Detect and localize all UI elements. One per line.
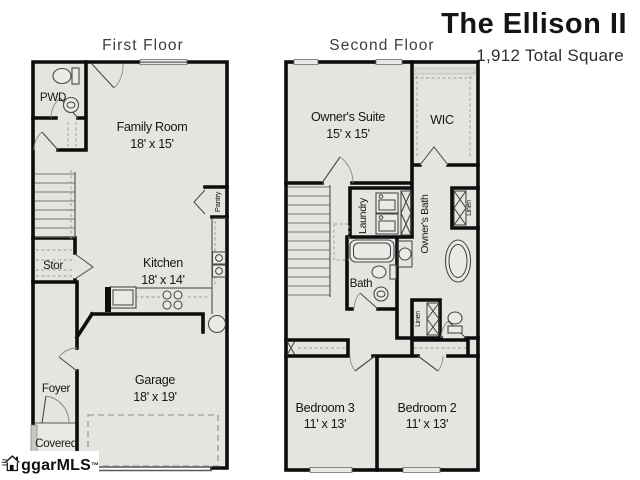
window [403, 467, 440, 472]
wic-shelf [414, 68, 475, 74]
owners-suite-dims: 15' x 15' [326, 127, 369, 141]
garage-label: Garage [135, 373, 176, 387]
floor-plan-page: The Ellison II 1,912 Total Square First … [0, 0, 640, 480]
floor-plan-drawing: PWD Family Room 18' x 15' Stor Kitchen 1… [0, 0, 640, 480]
bedroom3-dims: 11' x 13' [304, 417, 347, 431]
window [294, 60, 318, 65]
linen-upper-label: Linen [466, 200, 473, 216]
wic-label: WIC [430, 113, 454, 127]
bath-label: Bath [350, 277, 373, 290]
pwd-label: PWD [40, 91, 66, 104]
pantry-label: Pantry [213, 191, 222, 212]
family-room-label: Family Room [117, 120, 188, 134]
bedroom2-label: Bedroom 2 [398, 401, 457, 415]
first-floor-plan: PWD Family Room 18' x 15' Stor Kitchen 1… [31, 60, 227, 471]
window [376, 60, 402, 65]
bathtub-icon [350, 240, 394, 262]
window [310, 467, 352, 472]
linen-hall-label: Linen [415, 311, 422, 327]
laundry-label: Laundry [357, 197, 369, 234]
refrigerator-icon [110, 287, 136, 308]
sink-icon [374, 287, 388, 301]
toilet-icon [372, 265, 396, 279]
owners-bath-label: Owner's Bath [419, 194, 431, 254]
toilet-icon [448, 312, 462, 333]
second-floor-plan: Owner's Suite 15' x 15' WIC Laundry Owne… [286, 60, 478, 473]
mls-watermark: ggarMLS™ [0, 451, 99, 480]
house-logo-icon [1, 448, 21, 478]
kitchen-sink-icon [213, 252, 226, 277]
bedroom2-dims: 11' x 13' [406, 417, 449, 431]
bedroom3-label: Bedroom 3 [296, 401, 355, 415]
toilet-icon [53, 68, 79, 84]
kitchen-label: Kitchen [143, 256, 183, 270]
foyer-label: Foyer [42, 382, 71, 395]
washer-dryer-icon [376, 193, 398, 234]
garage-dims: 18' x 19' [133, 390, 176, 404]
water-heater-icon [209, 316, 226, 333]
family-room-dims: 18' x 15' [130, 137, 173, 151]
kitchen-dims: 18' x 14' [141, 273, 184, 287]
owners-suite-label: Owner's Suite [311, 110, 385, 124]
covered-label: Covered [35, 437, 77, 450]
oval-tub-icon [446, 240, 471, 282]
stor-label: Stor [43, 259, 64, 272]
counter-end-wall [105, 287, 111, 312]
mls-watermark-text: ggarMLS [21, 457, 91, 475]
trademark-symbol: ™ [91, 461, 99, 470]
garage-door-line [94, 467, 212, 471]
